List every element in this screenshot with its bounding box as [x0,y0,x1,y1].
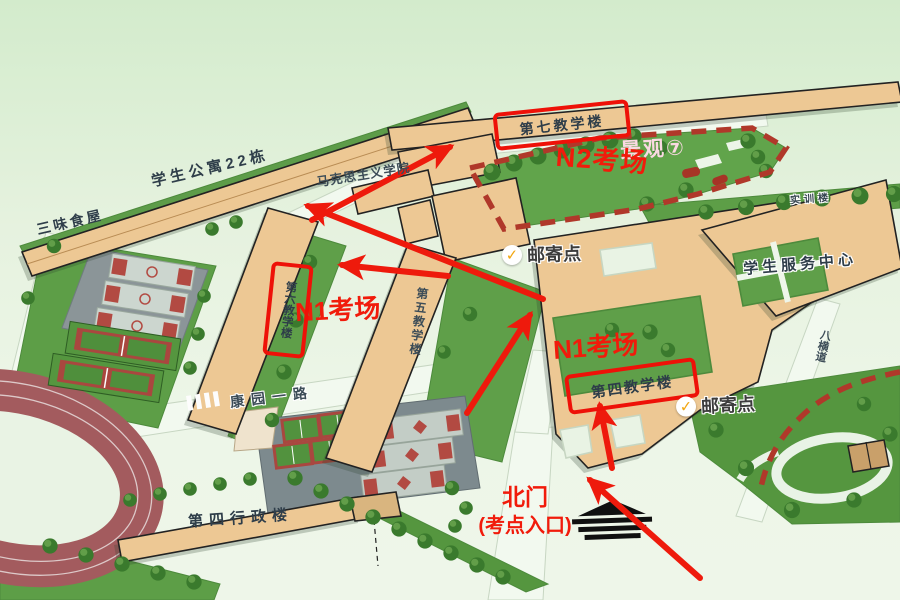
checkmark-icon: ✓ [502,245,523,266]
building4-label: 第四教学楼 [590,370,675,402]
mail-point-1-label: 邮寄点 [527,240,582,268]
mail-point-2-label: 邮寄点 [700,390,755,419]
mail-point-2: ✓ 邮寄点 [675,390,755,420]
marxism-block-d [398,200,438,244]
n2-exam-room-label: N2考场 [555,135,650,180]
north-gate-entrance-label: 北门 (考点入口) [450,482,600,540]
training-building-label: 实训楼 [790,189,833,207]
campus-map: 第七教学楼 N2考场 景观⑦ 学生公寓22栋 三味食屋 马克思主义学院 ✓ 邮寄… [0,0,900,600]
checkmark-icon: ✓ [676,396,697,417]
building6-label: 第六教学楼 [277,281,299,340]
north-gate-title: 北门 [450,482,600,513]
n1-exam-room-east-label: N1考场 [552,324,640,367]
north-gate-subtitle: (考点入口) [450,513,600,540]
mail-point-1: ✓ 邮寄点 [502,240,582,269]
